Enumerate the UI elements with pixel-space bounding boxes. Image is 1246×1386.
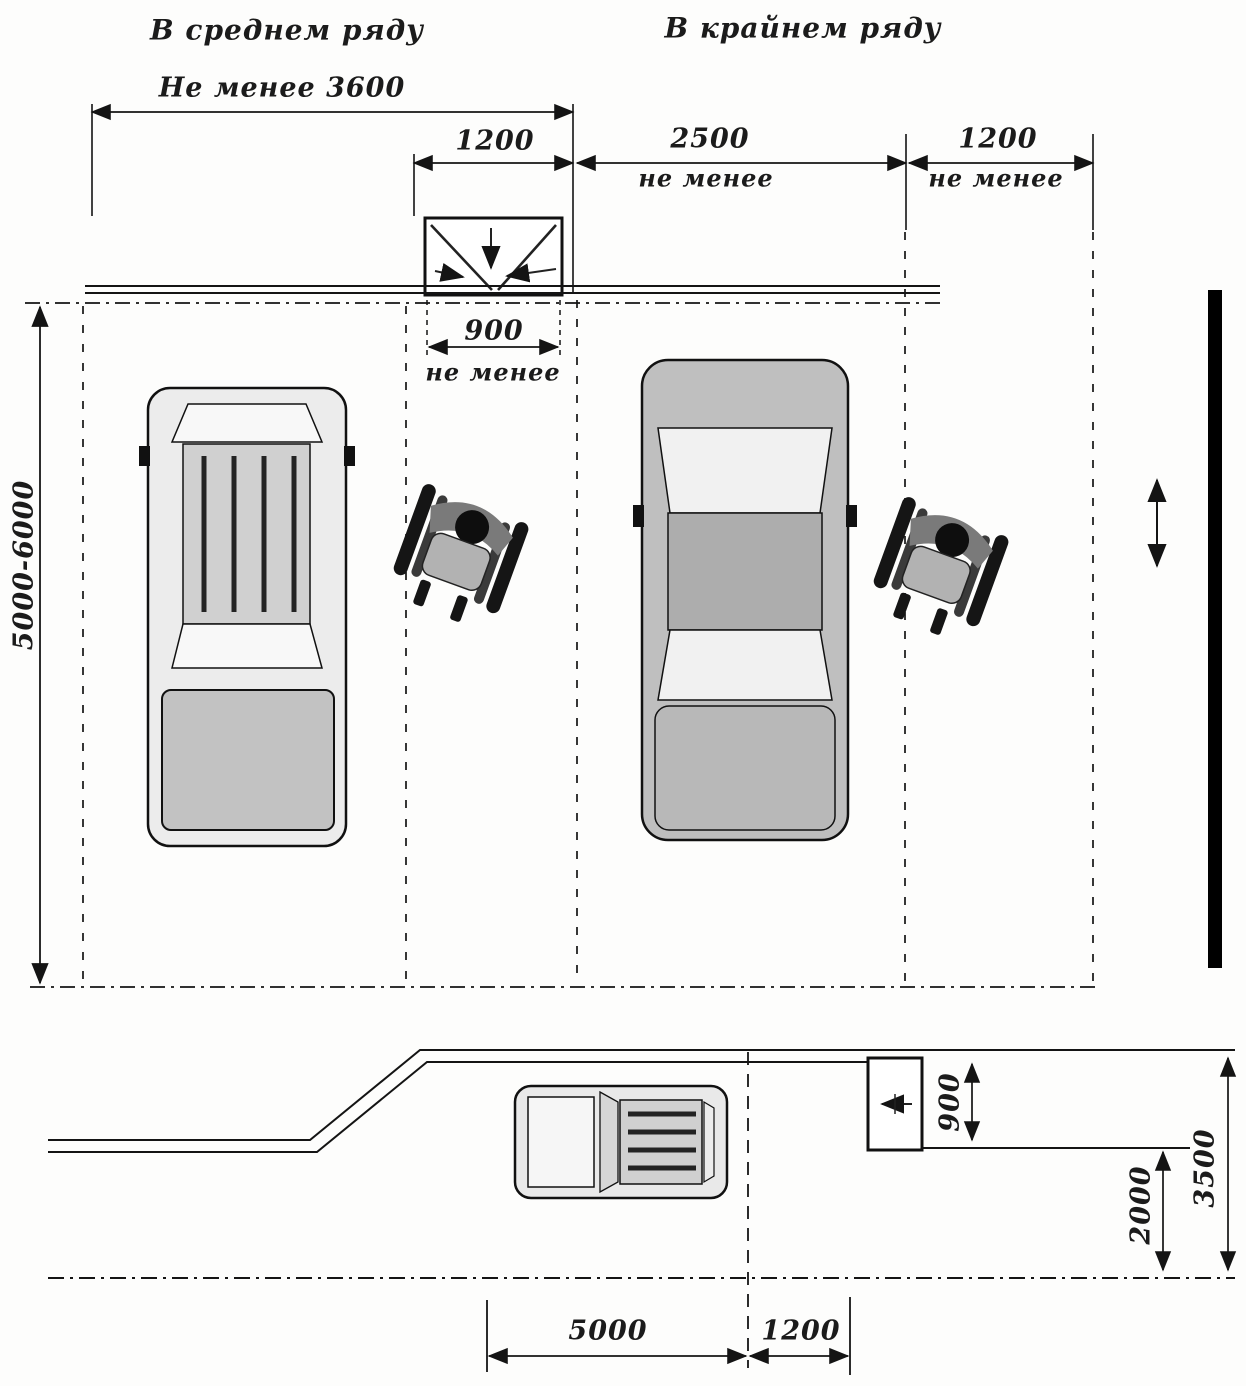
dim-label-5000-6000: 5000-6000 [9, 480, 40, 651]
dim-label-5000-bottom: 5000 [568, 1316, 647, 1347]
extension-lines [92, 104, 1093, 294]
dim-label-3500: 3500 [1190, 1128, 1221, 1207]
car-top-view-parallel [515, 1086, 727, 1198]
dim-label-900-walkway: 900 [935, 1072, 966, 1131]
wheelchair-icon [864, 495, 1012, 647]
car-top-view-outer-row [633, 360, 857, 840]
title-outer-row: В крайнем ряду [664, 12, 941, 45]
dim-label-2000: 2000 [1126, 1165, 1157, 1244]
dim-label-3600: Не менее 3600 [159, 73, 406, 104]
dim-label-900-marking: 900 [464, 316, 523, 347]
diagram-canvas [0, 0, 1246, 1386]
dimension-lines-top [92, 112, 1093, 163]
dim-note-1200-right: не менее [928, 164, 1063, 193]
dim-note-2500: не менее [638, 164, 773, 193]
dim-label-1200-bottom: 1200 [761, 1316, 840, 1347]
car-top-view-middle-row [139, 388, 355, 846]
parking-layout-diagram: В среднем ряду В крайнем ряду Не менее 3… [0, 0, 1246, 1386]
dim-label-1200-top: 1200 [455, 126, 534, 157]
dim-label-1200-right: 1200 [958, 124, 1037, 155]
title-middle-row: В среднем ряду [150, 14, 424, 47]
walkway-sign-box [868, 1058, 922, 1150]
dim-label-2500: 2500 [670, 124, 749, 155]
access-aisle-marking-box [425, 218, 562, 295]
dim-note-900: не менее [425, 358, 560, 387]
curb-wall-bar [1208, 290, 1222, 968]
